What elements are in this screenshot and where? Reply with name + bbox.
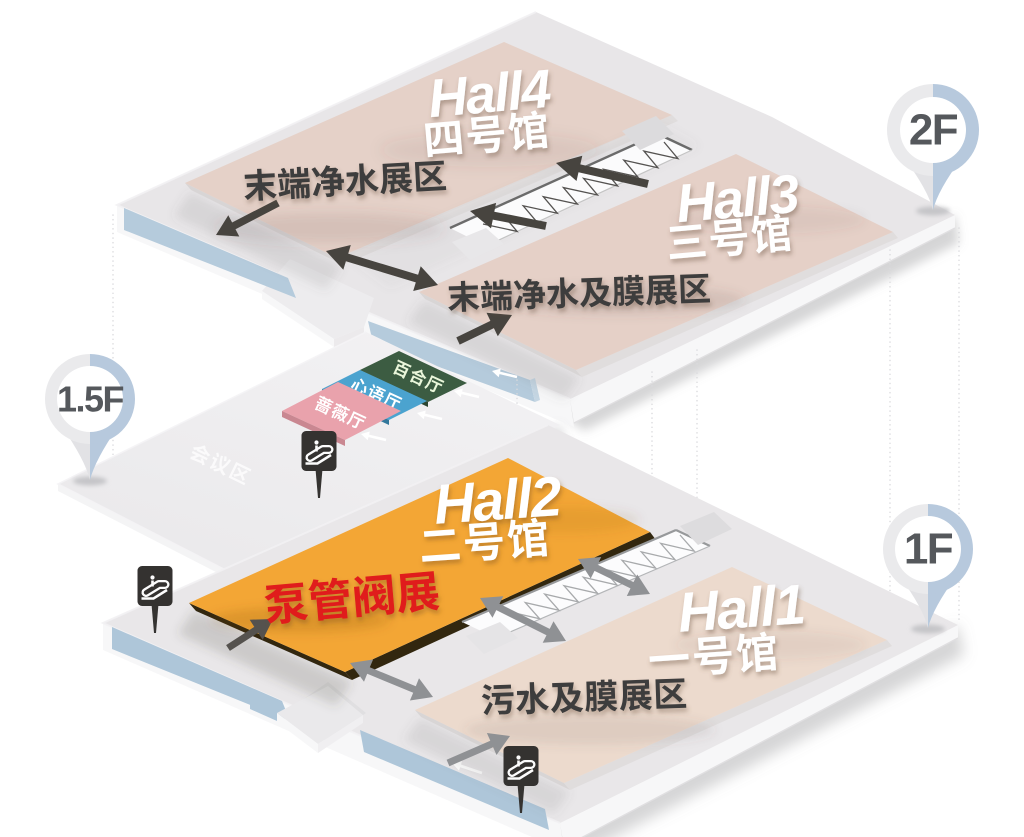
svg-text:1F: 1F	[904, 525, 953, 574]
svg-text:1.5F: 1.5F	[57, 379, 124, 420]
svg-text:2F: 2F	[909, 106, 958, 155]
svg-text:Hall1: Hall1	[676, 572, 806, 644]
